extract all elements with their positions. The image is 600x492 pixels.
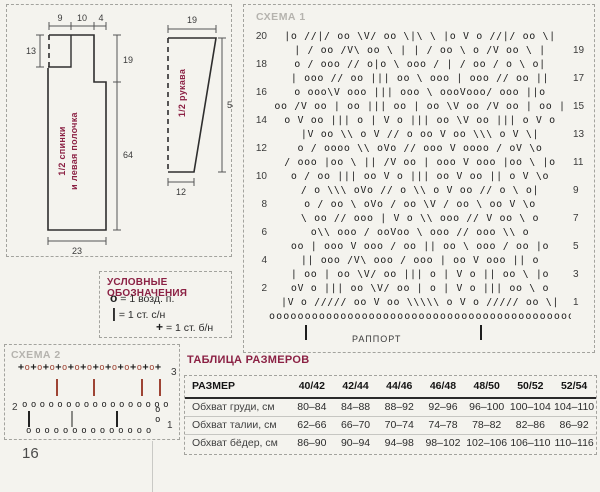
size-table-cell: 100–104 — [509, 398, 553, 417]
size-table-cell: 98–102 — [421, 435, 465, 453]
size-table-row: Обхват талии, см62–6666–7070–7474–7878–8… — [185, 417, 596, 435]
schematics-panel: 9 10 4 13 19 64 23 1/2 спинки и левая по… — [6, 4, 232, 257]
size-table-body: Обхват груди, см80–8484–8888–9292–9696–1… — [185, 398, 596, 452]
size-table-cell: 70–74 — [377, 417, 421, 435]
size-table-cell: 86–92 — [552, 417, 596, 435]
chart1-pattern-row: 12о / оооо \\ оVо // ооо V оооо / оV \о — [248, 142, 592, 156]
chart2-edge-chains: оо — [155, 405, 163, 425]
repeat-label: РАППОРТ — [352, 334, 401, 344]
chart2-red-bar — [93, 379, 95, 396]
chart1-pattern-row: \ оо // ооо | V о \\ ооо // V оо \ о7 — [248, 212, 592, 226]
chart1-pattern-row: |V оо \\ о V // о оо V оо \\\ о V \|13 — [248, 128, 592, 142]
size-table-header-cell: 50/52 — [509, 376, 553, 398]
repeat-marker-right — [480, 325, 482, 340]
body-neck-measure — [36, 35, 44, 67]
magazine-page: { "page": {"background":"#f4f3ee","accen… — [0, 0, 600, 492]
chart2-red-bar — [141, 379, 143, 396]
legend-item-dc: | = 1 ст. с/н — [112, 305, 165, 321]
size-table-header-cell: РАЗМЕР — [185, 376, 290, 398]
sc-symbol: + — [155, 362, 162, 373]
sleeve-label: 1/2 рукава — [177, 68, 187, 117]
size-table-cell: 94–98 — [377, 435, 421, 453]
chart2-row-2: ооооооооооооооооо — [22, 400, 172, 410]
dim-top-4: 4 — [98, 13, 103, 23]
dim-neck-13: 13 — [26, 46, 36, 56]
size-table-cell: 104–110 — [552, 398, 596, 417]
size-table-cell: 102–106 — [465, 435, 509, 453]
column-divider — [152, 441, 153, 492]
legend-item-sc-text: = 1 ст. б/н — [166, 322, 213, 334]
chart1-pattern-row: 6о\\ ооо / ооVоо \ ооо // ооо \\ о — [248, 226, 592, 240]
chart1-pattern-row: | оо | оо \V/ оо ||| о | V о || оо \ |о3 — [248, 268, 592, 282]
size-table-header-cell: 48/50 — [465, 376, 509, 398]
double-crochet-icon: | — [112, 305, 116, 321]
chart2-dc-bar — [116, 411, 118, 427]
size-table-header-cell: 52/54 — [552, 376, 596, 398]
chart1-pattern-row: |V о ///// оо V оо \\\\\ о V о ///// оо … — [248, 296, 592, 310]
body-piece-label-2: и левая полочка — [69, 111, 79, 189]
body-top-measure — [49, 22, 106, 30]
dim-sleeve-54: 54 — [227, 100, 233, 110]
chart2-row-1: оооооооооооооо — [26, 426, 155, 436]
sleeve-height-measure — [218, 38, 226, 172]
garment-schematic-drawing: 9 10 4 13 19 64 23 1/2 спинки и левая по… — [7, 5, 233, 258]
size-table-cell: 88–92 — [377, 398, 421, 417]
size-table-cell: 106–110 — [509, 435, 553, 453]
size-table-cell: 96–100 — [465, 398, 509, 417]
size-table-row: Обхват бёдер, см86–9090–9494–9898–102102… — [185, 435, 596, 453]
chart1-pattern-row: 10о / оо ||| оо V о ||| оо V оо || о V \… — [248, 170, 592, 184]
size-table-header-cell: 40/42 — [290, 376, 334, 398]
size-table-cell: Обхват груди, см — [185, 398, 290, 417]
dim-top-10: 10 — [77, 13, 87, 23]
chart2-dc-bar — [71, 411, 73, 427]
size-table-cell: Обхват бёдер, см — [185, 435, 290, 453]
dim-top-9: 9 — [57, 13, 62, 23]
sleeve-outline — [168, 38, 216, 172]
size-table-cell: 86–90 — [290, 435, 334, 453]
chart1-pattern-row: | ооо // оо ||| оо \ ооо | ооо // оо ||1… — [248, 72, 592, 86]
size-table-cell: 110–116 — [552, 435, 596, 453]
size-table-header-cell: 42/44 — [334, 376, 378, 398]
chart1-pattern-row: оо | ооо V ооо / оо || оо \ ооо / оо |о5 — [248, 240, 592, 254]
size-table-cell: 92–96 — [421, 398, 465, 417]
chart2-red-bar — [56, 379, 58, 396]
size-table-cell: Обхват талии, см — [185, 417, 290, 435]
legend-item-sc: + = 1 ст. б/н — [156, 320, 213, 334]
size-table-title: ТАБЛИЦА РАЗМЕРОВ — [187, 354, 309, 366]
chart1-pattern-row: 18о / ооо // о|о \ ооо / | / оо / о \ о| — [248, 58, 592, 72]
chart2-row-3: +о+о+о+о+о+о+о+о+о+о+о+ — [18, 362, 162, 373]
size-table-header-cell: 44/46 — [377, 376, 421, 398]
size-table-cell: 74–78 — [421, 417, 465, 435]
sleeve-top-measure — [168, 25, 216, 33]
size-table-header-cell: 46/48 — [421, 376, 465, 398]
body-neck-step — [48, 35, 71, 67]
chart2-title: СХЕМА 2 — [11, 349, 61, 361]
chart1-panel: СХЕМА 1 20|о //|/ оо \V/ оо \|\ \ |о V о… — [243, 4, 595, 353]
chart1-pattern-row: / о \\\ оVо // о \\ о V оо // о \ о|9 — [248, 184, 592, 198]
chart1-pattern-row: 16о ооо\V ооо ||| ооо \ оооVооо/ ооо ||о — [248, 86, 592, 100]
dim-bottom-23: 23 — [72, 246, 82, 256]
size-table-head: РАЗМЕР40/4242/4444/4646/4848/5050/5252/5… — [185, 376, 596, 398]
size-table-cell: 62–66 — [290, 417, 334, 435]
legend-item-chain-text: = 1 возд. п. — [120, 293, 174, 305]
body-bottom-measure — [48, 237, 106, 245]
sleeve-bottom-measure — [168, 178, 194, 186]
chart1-pattern-row: 2оV о ||| оо \V/ оо | о | V о ||| оо \ о — [248, 282, 592, 296]
body-side-measure — [113, 35, 121, 230]
legend-panel: УСЛОВНЫЕ ОБОЗНАЧЕНИЯ о = 1 возд. п. | = … — [99, 271, 232, 338]
chart1-pattern-row: 8о / оо \ оVо / оо \V / оо \ оо V \о — [248, 198, 592, 212]
chart2-dc-bar — [28, 411, 30, 427]
single-crochet-icon: + — [156, 320, 163, 334]
dim-side-64: 64 — [123, 150, 133, 160]
size-table-panel: РАЗМЕР40/4242/4444/4646/4848/5050/5252/5… — [184, 375, 597, 455]
repeat-marker-left — [305, 325, 307, 340]
chart1-pattern-row: 4|| ооо /V\ ооо / ооо | оо V ооо || о — [248, 254, 592, 268]
chain-stitch-icon: о — [110, 291, 117, 305]
chart1-pattern-row: 20|о //|/ оо \V/ оо \|\ \ |о V о //|/ оо… — [248, 30, 592, 44]
body-piece-label-1: 1/2 спинки — [57, 126, 67, 175]
dim-sleeve-top-19: 19 — [187, 15, 197, 25]
size-table-cell: 82–86 — [509, 417, 553, 435]
size-table-cell: 78–82 — [465, 417, 509, 435]
chart2-rownum-2: 2 — [12, 402, 18, 413]
size-table-cell: 66–70 — [334, 417, 378, 435]
legend-item-chain: о = 1 возд. п. — [110, 291, 174, 305]
chart1-title: СХЕМА 1 — [256, 11, 306, 23]
dim-sleeve-bottom-12: 12 — [176, 187, 186, 197]
dim-armhole-19: 19 — [123, 55, 133, 65]
chart1-pattern-row: 14о V оо ||| о | V о ||| оо \V оо ||| о … — [248, 114, 592, 128]
size-table-row: Обхват груди, см80–8484–8888–9292–9696–1… — [185, 398, 596, 417]
chart2-rownum-1: 1 — [167, 420, 173, 431]
chart1-pattern-row: | / оо /V\ оо \ | | / оо \ о /V оо \ |19 — [248, 44, 592, 58]
size-table: РАЗМЕР40/4242/4444/4646/4848/5050/5252/5… — [185, 376, 596, 452]
size-table-cell: 90–94 — [334, 435, 378, 453]
chart2-red-bar — [159, 379, 161, 396]
size-table-cell: 80–84 — [290, 398, 334, 417]
chart1-rows: 20|о //|/ оо \V/ оо \|\ \ |о V о //|/ оо… — [248, 30, 592, 324]
size-table-cell: 84–88 — [334, 398, 378, 417]
chart1-pattern-row: оо /V оо | оо ||| оо | оо \V оо /V оо | … — [248, 100, 592, 114]
chart2-panel: СХЕМА 2 +о+о+о+о+о+о+о+о+о+о+о+ оооооооо… — [4, 344, 180, 440]
chart1-pattern-row: / ооо |оо \ || /V оо | ооо V ооо |оо \ |… — [248, 156, 592, 170]
page-number: 16 — [22, 445, 39, 462]
chart1-foundation-chain: оооооооооооооооооооооооооооооооооооооооо… — [248, 310, 592, 324]
chart2-rownum-3: 3 — [171, 367, 177, 378]
